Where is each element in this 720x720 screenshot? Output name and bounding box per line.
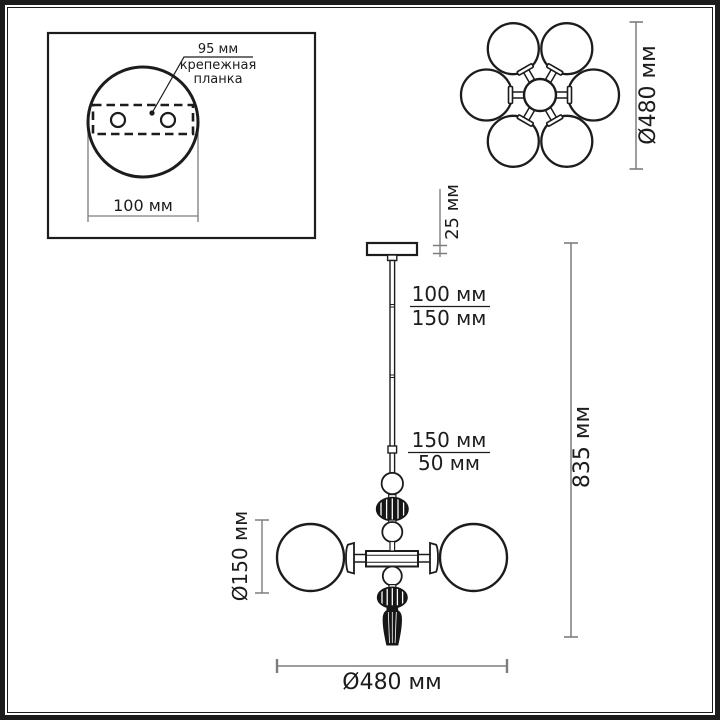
top-view: Ø480 мм	[461, 22, 661, 169]
top-view-globe	[461, 70, 512, 121]
top-view-arm	[509, 87, 526, 104]
hanging-rod	[390, 261, 395, 474]
mounting-inset: 95 мм крепежная планка 100 мм	[48, 33, 315, 238]
canopy-height-label: 25 мм	[442, 184, 463, 240]
bracket-label-line2: планка	[193, 72, 242, 87]
globe-right	[440, 524, 507, 591]
ball-finial-3	[383, 567, 402, 586]
canopy-collar	[388, 255, 397, 261]
globe-diameter-label: Ø150 мм	[228, 511, 252, 601]
top-view-arm-cap	[568, 87, 572, 104]
overall-height-label: 835 мм	[570, 406, 595, 488]
globe-left	[277, 524, 344, 591]
rod-collar	[388, 446, 397, 453]
right-socket-cap	[430, 543, 438, 574]
overall-width-label: Ø480 мм	[342, 670, 442, 695]
top-view-diameter-dimension: Ø480 мм	[630, 22, 662, 169]
top-view-arm-cap	[509, 87, 513, 104]
hole-spacing-label: 95 мм	[198, 42, 238, 57]
bracket-label-line1: крепежная	[180, 58, 257, 73]
top-view-diameter-label: Ø480 мм	[636, 45, 661, 145]
lower-rod-length-label-a: 150 мм	[412, 428, 487, 452]
ball-finial-2	[382, 522, 402, 542]
technical-drawing-canvas: 95 мм крепежная планка 100 мм	[0, 0, 720, 720]
mounting-hole-left	[111, 113, 125, 127]
left-socket-cap	[346, 543, 354, 574]
top-view-hub	[524, 79, 556, 111]
mount-base-circle	[88, 67, 198, 177]
lower-rod-length-label-b: 50 мм	[418, 451, 480, 475]
side-view-dimensions: 25 мм 100 мм 150 мм 150 мм 50 мм 835 мм …	[228, 184, 595, 695]
canopy-plate	[367, 243, 417, 255]
central-hub	[366, 551, 418, 567]
base-width-label: 100 мм	[113, 196, 173, 215]
ball-finial-1	[382, 473, 403, 494]
mounting-hole-right	[161, 113, 175, 127]
upper-rod-length-label-a: 100 мм	[412, 282, 487, 306]
top-view-arm	[555, 87, 572, 104]
hub-stem	[390, 542, 395, 552]
upper-rod-length-label-b: 150 мм	[412, 306, 487, 330]
chandelier-dimension-drawing: 95 мм крепежная планка 100 мм	[0, 0, 720, 720]
top-view-globe	[568, 70, 619, 121]
